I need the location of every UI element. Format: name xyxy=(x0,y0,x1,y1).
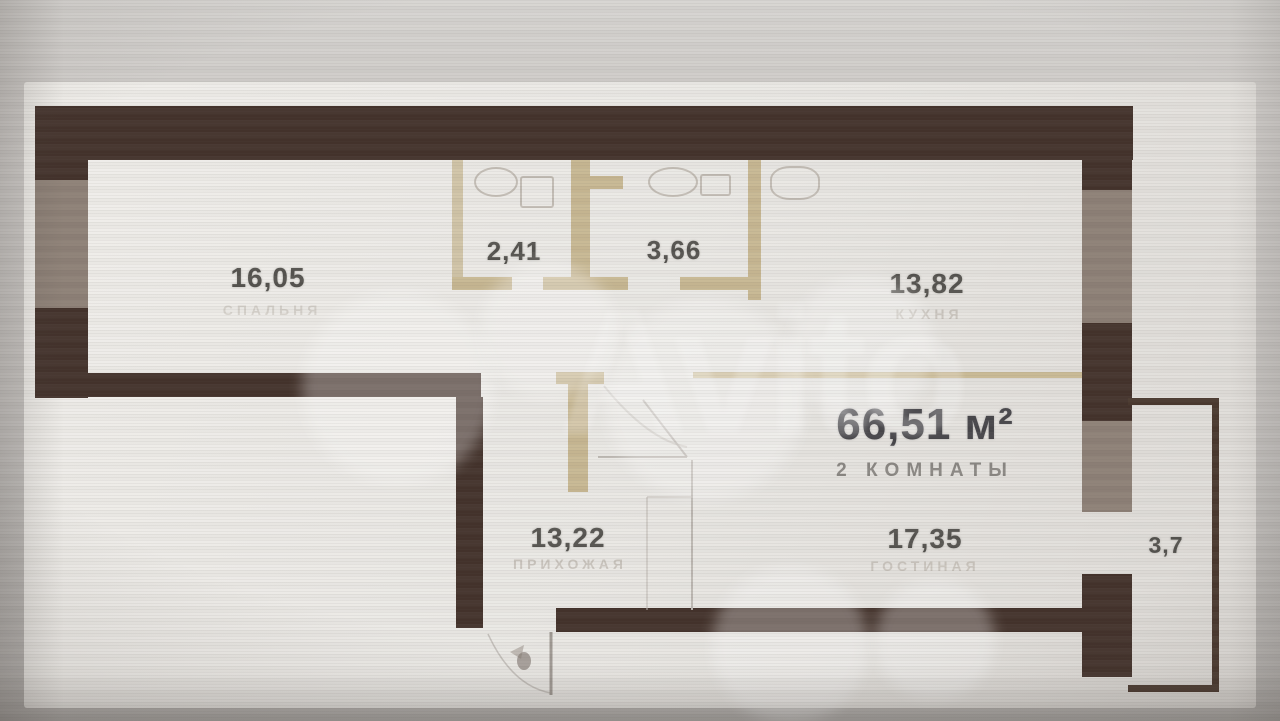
bedroom-label: СПАЛЬНЯ xyxy=(223,302,322,318)
living-label: ГОСТИНАЯ xyxy=(870,558,979,574)
bedroom-area: 16,05 xyxy=(230,262,305,294)
floorplan-photo: 16,05 СПАЛЬНЯ 2,41 3,66 13,82 КУХНЯ 66,5… xyxy=(0,0,1280,721)
wc-area: 2,41 xyxy=(487,236,542,267)
hallway-area: 13,22 xyxy=(530,522,605,554)
living-area: 17,35 xyxy=(887,523,962,555)
avito-watermark: Avito xyxy=(558,268,961,475)
watermark-circle xyxy=(875,580,995,700)
watermark-circle xyxy=(302,292,494,484)
bathroom-area: 3,66 xyxy=(647,235,702,266)
entry-door-mark xyxy=(510,645,531,670)
hallway-label: ПРИХОЖАЯ xyxy=(513,556,627,572)
balcony-area: 3,7 xyxy=(1149,532,1184,559)
watermark-circle xyxy=(712,567,868,721)
